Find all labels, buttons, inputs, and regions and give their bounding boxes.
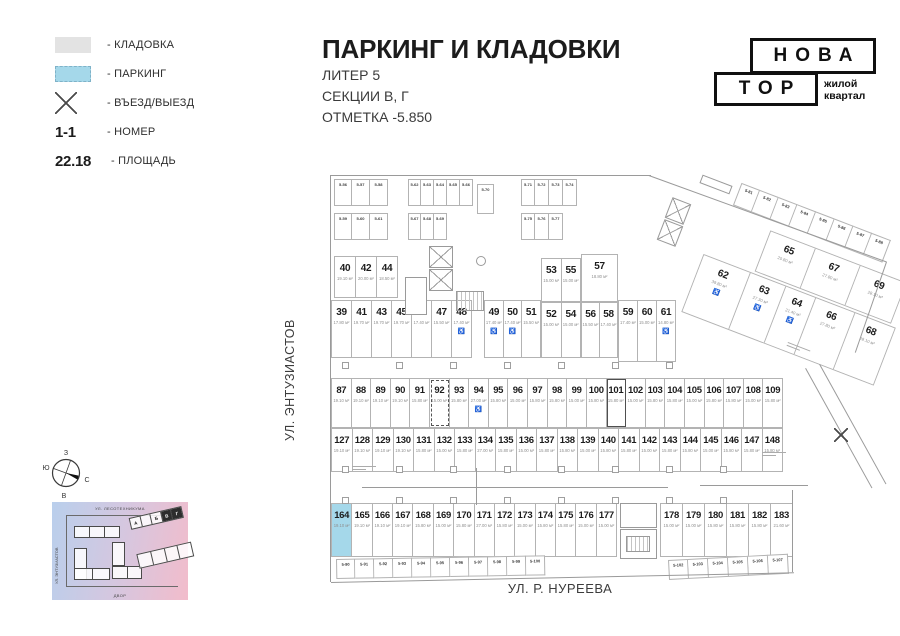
stall-number: 100 bbox=[589, 386, 604, 396]
stall-number: 169 bbox=[436, 511, 451, 521]
parking-stall-139[interactable]: 13915.00 м² bbox=[578, 429, 599, 471]
parking-stall-100[interactable]: 10015.80 м² bbox=[587, 379, 607, 427]
storage-cell-5-96[interactable]: 5-96 bbox=[450, 557, 469, 577]
stall-area: 15.00 м² bbox=[639, 320, 655, 325]
stall-area: 15.80 м² bbox=[415, 523, 431, 528]
parking-stall-134[interactable]: 13427.00 м² bbox=[476, 429, 497, 471]
stall-group-gB3: 5215.00 м²5415.00 м² bbox=[541, 302, 581, 358]
parking-stall-164[interactable]: 16419.10 м² bbox=[332, 504, 352, 556]
stall-number: 131 bbox=[416, 436, 431, 446]
storage-cell-5-60[interactable]: 5-60 bbox=[352, 213, 370, 240]
stall-area: 27.00 м² bbox=[477, 448, 493, 453]
parking-stall-42[interactable]: 4220.00 м² bbox=[356, 257, 377, 297]
stall-number: 63 bbox=[757, 284, 770, 297]
stall-group-gB2: 4917.40 м²♿5017.40 м²♿5115.50 м² bbox=[484, 300, 541, 358]
column-marker bbox=[396, 497, 403, 504]
stall-area: 15.80 м² bbox=[539, 448, 555, 453]
parking-stall-143[interactable]: 14315.80 м² bbox=[660, 429, 681, 471]
stall-number: 132 bbox=[437, 436, 452, 446]
parking-stall-49[interactable]: 4917.40 м²♿ bbox=[485, 301, 504, 357]
parking-stall-109[interactable]: 10915.80 м² bbox=[763, 379, 782, 427]
minimap-building bbox=[112, 542, 125, 566]
parking-stall-166[interactable]: 16619.10 м² bbox=[373, 504, 393, 556]
stall-area: 19.70 м² bbox=[394, 320, 410, 325]
stall-number: 55 bbox=[565, 266, 576, 276]
svg-text:В: В bbox=[62, 493, 67, 500]
stall-number: 87 bbox=[336, 386, 346, 396]
stall-area: 15.00 м² bbox=[436, 448, 452, 453]
parking-stall-170[interactable]: 17015.80 м² bbox=[454, 504, 474, 556]
stall-group-gA: 4019.10 м²4220.00 м²4418.50 м² bbox=[334, 256, 398, 298]
stall-area: 15.80 м² bbox=[730, 523, 746, 528]
column-marker bbox=[342, 362, 349, 369]
annotation-note bbox=[352, 466, 376, 472]
stall-number: 139 bbox=[580, 436, 595, 446]
column-marker bbox=[666, 497, 673, 504]
stall-area: 15.00 м² bbox=[580, 448, 596, 453]
storage-cell-5-71[interactable]: 5-71 bbox=[521, 179, 535, 206]
parking-stall-131[interactable]: 13115.80 м² bbox=[414, 429, 435, 471]
minimap-building bbox=[74, 568, 110, 580]
parking-stall-169[interactable]: 16915.00 м² bbox=[434, 504, 454, 556]
parking-stall-61[interactable]: 6114.80 м²♿ bbox=[657, 301, 675, 361]
parking-stall-142[interactable]: 14215.00 м² bbox=[640, 429, 661, 471]
stall-area: 15.80 м² bbox=[726, 398, 742, 403]
stall-number: 49 bbox=[489, 308, 500, 318]
parking-stall-130[interactable]: 13019.10 м² bbox=[394, 429, 415, 471]
storage-cell-5-75[interactable]: 5-75 bbox=[521, 213, 535, 240]
stall-area: 19.70 м² bbox=[354, 320, 370, 325]
stall-number: 172 bbox=[497, 511, 512, 521]
parking-stall-144[interactable]: 14415.80 м² bbox=[681, 429, 702, 471]
stall-group-gC: 8719.10 м²8819.10 м²8919.10 м²9019.10 м²… bbox=[331, 378, 783, 428]
stall-number: 177 bbox=[599, 511, 614, 521]
stall-area: 15.00 м² bbox=[686, 523, 702, 528]
stall-number: 145 bbox=[703, 436, 718, 446]
parking-stall-165[interactable]: 16519.10 м² bbox=[352, 504, 372, 556]
parking-stall-103[interactable]: 10315.80 м² bbox=[646, 379, 666, 427]
parking-stall-135[interactable]: 13515.80 м² bbox=[496, 429, 517, 471]
wall-line bbox=[819, 364, 886, 484]
stall-area: 19.10 м² bbox=[395, 448, 411, 453]
parking-stall-52[interactable]: 5215.00 м² bbox=[542, 303, 562, 357]
storage-cell-5-103[interactable]: 5-103 bbox=[688, 558, 709, 579]
stall-area: 15.80 м² bbox=[744, 448, 760, 453]
parking-stall-105[interactable]: 10515.00 м² bbox=[685, 379, 705, 427]
stall-area: 19.10 м² bbox=[334, 523, 350, 528]
parking-stall-127[interactable]: 12719.10 м² bbox=[332, 429, 353, 471]
column-marker bbox=[720, 497, 727, 504]
stall-area: 15.80 м² bbox=[412, 398, 428, 403]
parking-stall-97[interactable]: 9715.80 м² bbox=[528, 379, 548, 427]
stall-area: 27.00 м² bbox=[471, 398, 487, 403]
storage-cell-5-70[interactable]: 5-70 bbox=[477, 184, 494, 214]
stall-area: 15.80 м² bbox=[600, 448, 616, 453]
storage-cell-5-99[interactable]: 5-99 bbox=[507, 556, 526, 576]
stall-group-gE2: 17815.00 м²17915.00 м²18015.80 м²18115.8… bbox=[660, 503, 793, 557]
storage-cell-5-67[interactable]: 5-67 bbox=[408, 213, 421, 240]
parking-stall-101[interactable]: 10115.80 м² bbox=[607, 379, 627, 427]
stall-area: 15.80 м² bbox=[537, 523, 553, 528]
parking-stall-140[interactable]: 14015.80 м² bbox=[599, 429, 620, 471]
parking-stall-174[interactable]: 17415.80 м² bbox=[536, 504, 556, 556]
stall-number: 144 bbox=[683, 436, 698, 446]
column-marker bbox=[504, 362, 511, 369]
parking-stall-60[interactable]: 6015.00 м² bbox=[638, 301, 657, 361]
storage-cell-5-98[interactable]: 5-98 bbox=[488, 556, 507, 576]
parking-stall-44[interactable]: 4418.50 м² bbox=[377, 257, 397, 297]
column-marker bbox=[504, 497, 511, 504]
parking-stall-99[interactable]: 9915.00 м² bbox=[567, 379, 587, 427]
parking-stall-51[interactable]: 5115.50 м² bbox=[522, 301, 540, 357]
stall-number: 143 bbox=[662, 436, 677, 446]
parking-stall-179[interactable]: 17915.00 м² bbox=[683, 504, 705, 556]
stall-number: 135 bbox=[498, 436, 513, 446]
parking-stall-171[interactable]: 17127.00 м² bbox=[475, 504, 495, 556]
minimap-street-left: УЛ. ЭНТУЗИАСТОВ bbox=[54, 522, 59, 584]
parking-stall-173[interactable]: 17315.00 м² bbox=[515, 504, 535, 556]
parking-stall-176[interactable]: 17615.00 м² bbox=[576, 504, 596, 556]
svg-text:С: С bbox=[84, 477, 89, 484]
wheelchair-icon: ♿ bbox=[752, 305, 761, 313]
parking-stall-168[interactable]: 16815.80 м² bbox=[413, 504, 433, 556]
stall-area: 19.10 м² bbox=[333, 398, 349, 403]
parking-stall-50[interactable]: 5017.40 м²♿ bbox=[504, 301, 523, 357]
stall-area: 14.80 м² bbox=[658, 320, 674, 325]
storage-cell-5-68[interactable]: 5-68 bbox=[421, 213, 434, 240]
parking-stall-104[interactable]: 10415.80 м² bbox=[665, 379, 685, 427]
stall-area: 15.80 м² bbox=[451, 398, 467, 403]
stall-area: 17.40 м² bbox=[486, 320, 502, 325]
stall-area: 15.00 м² bbox=[745, 398, 761, 403]
parking-stall-128[interactable]: 12819.10 м² bbox=[353, 429, 374, 471]
parking-stall-177[interactable]: 17715.00 м² bbox=[597, 504, 616, 556]
parking-stall-172[interactable]: 17215.80 м² bbox=[495, 504, 515, 556]
stall-number: 133 bbox=[457, 436, 472, 446]
stall-number: 96 bbox=[513, 386, 523, 396]
stall-number: 43 bbox=[376, 308, 387, 318]
stall-group-gB: 3917.80 м²4119.70 м²4319.70 м²4519.70 м²… bbox=[331, 300, 472, 358]
parking-stall-59[interactable]: 5917.40 м² bbox=[619, 301, 638, 361]
stall-number: 167 bbox=[395, 511, 410, 521]
column-marker bbox=[450, 466, 457, 473]
stall-number: 130 bbox=[396, 436, 411, 446]
parking-stall-92[interactable]: 9215.00 м² bbox=[430, 379, 450, 427]
stall-area: 15.80 м² bbox=[456, 523, 472, 528]
stall-area: 15.80 м² bbox=[457, 448, 473, 453]
stall-number: 62 bbox=[716, 269, 729, 282]
stall-area: 15.00 м² bbox=[436, 523, 452, 528]
parking-stall-145[interactable]: 14515.00 м² bbox=[701, 429, 722, 471]
stall-area: 15.80 м² bbox=[682, 448, 698, 453]
parking-stall-175[interactable]: 17515.80 м² bbox=[556, 504, 576, 556]
stall-number: 174 bbox=[538, 511, 553, 521]
stall-area: 15.00 м² bbox=[664, 523, 680, 528]
parking-stall-53[interactable]: 5315.00 м² bbox=[542, 259, 562, 301]
stall-number: 94 bbox=[474, 386, 484, 396]
storage-cell-5-102[interactable]: 5-102 bbox=[668, 559, 689, 580]
column-marker bbox=[558, 466, 565, 473]
parking-stall-133[interactable]: 13315.80 м² bbox=[455, 429, 476, 471]
column-marker bbox=[720, 466, 727, 473]
stall-number: 146 bbox=[724, 436, 739, 446]
stall-area: 20.00 м² bbox=[358, 276, 374, 281]
parking-stall-95[interactable]: 9515.80 м² bbox=[489, 379, 509, 427]
storage-cell-5-94[interactable]: 5-94 bbox=[412, 557, 431, 577]
parking-stall-56[interactable]: 5615.50 м² bbox=[582, 303, 600, 357]
stall-number: 128 bbox=[355, 436, 370, 446]
stall-number: 129 bbox=[375, 436, 390, 446]
street-label-left: УЛ. ЭНТУЗИАСТОВ bbox=[283, 316, 297, 444]
wheelchair-icon: ♿ bbox=[509, 329, 516, 335]
stall-area: 15.50 м² bbox=[583, 322, 599, 327]
parking-stall-94[interactable]: 9427.00 м²♿ bbox=[469, 379, 489, 427]
parking-stall-57[interactable]: 5718.80 м² bbox=[582, 255, 617, 301]
stall-number: 58 bbox=[603, 310, 614, 320]
storage-cell-5-76[interactable]: 5-76 bbox=[535, 213, 549, 240]
storage-cell-5-62[interactable]: 5-62 bbox=[408, 179, 421, 206]
stall-group-gA2: 5315.00 м²5515.00 м² bbox=[541, 258, 581, 302]
stall-number: 99 bbox=[572, 386, 582, 396]
column-marker bbox=[612, 466, 619, 473]
parking-stall-180[interactable]: 18015.80 м² bbox=[705, 504, 727, 556]
storage-cell-5-92[interactable]: 5-92 bbox=[374, 558, 393, 578]
storage-cell-5-58[interactable]: 5-58 bbox=[370, 179, 388, 206]
parking-stall-183[interactable]: 18321.60 м² bbox=[771, 504, 792, 556]
storage-cell-5-66[interactable]: 5-66 bbox=[460, 179, 473, 206]
stall-area: 15.00 м² bbox=[563, 278, 579, 283]
minimap-building bbox=[112, 566, 142, 579]
stall-area: 15.80 м² bbox=[621, 448, 637, 453]
stall-number: 108 bbox=[746, 386, 761, 396]
storage-cell-5-72[interactable]: 5-72 bbox=[535, 179, 549, 206]
stall-area: 15.00 м² bbox=[641, 448, 657, 453]
storage-cluster-2: 5-70 bbox=[477, 184, 494, 214]
parking-stall-106[interactable]: 10615.80 м² bbox=[705, 379, 725, 427]
stall-area: 15.80 м² bbox=[588, 398, 604, 403]
stall-number: 179 bbox=[686, 511, 701, 521]
stall-number: 181 bbox=[730, 511, 745, 521]
wheelchair-icon: ♿ bbox=[785, 317, 794, 325]
stall-area: 15.80 м² bbox=[608, 398, 624, 403]
parking-stall-108[interactable]: 10815.00 м² bbox=[744, 379, 764, 427]
storage-cell-5-97[interactable]: 5-97 bbox=[469, 556, 488, 576]
storage-cell-5-57[interactable]: 5-57 bbox=[352, 179, 370, 206]
stall-number: 182 bbox=[752, 511, 767, 521]
stall-number: 59 bbox=[623, 308, 634, 318]
column-marker bbox=[396, 466, 403, 473]
stall-number: 64 bbox=[790, 297, 803, 310]
stall-area: 19.10 м² bbox=[353, 398, 369, 403]
stall-number: 148 bbox=[765, 436, 780, 446]
stall-number: 137 bbox=[539, 436, 554, 446]
stall-number: 50 bbox=[507, 308, 518, 318]
stall-number: 106 bbox=[706, 386, 721, 396]
parking-stall-138[interactable]: 13815.80 м² bbox=[558, 429, 579, 471]
parking-stall-147[interactable]: 14715.80 м² bbox=[742, 429, 763, 471]
parking-stall-93[interactable]: 9315.80 м² bbox=[450, 379, 470, 427]
parking-stall-87[interactable]: 8719.10 м² bbox=[332, 379, 352, 427]
parking-stall-181[interactable]: 18115.80 м² bbox=[727, 504, 749, 556]
stall-area: 18.50 м² bbox=[379, 276, 395, 281]
stall-group-gB4: 5615.50 м²5817.40 м² bbox=[581, 302, 618, 358]
stall-area: 21.60 м² bbox=[774, 523, 790, 528]
parking-stall-148[interactable]: 14815.80 м² bbox=[763, 429, 783, 471]
storage-cell-5-56[interactable]: 5-56 bbox=[334, 179, 352, 206]
stall-area: 15.00 м² bbox=[569, 398, 585, 403]
stall-area: 15.00 м² bbox=[598, 523, 614, 528]
wall-line bbox=[330, 175, 331, 582]
column-marker bbox=[558, 497, 565, 504]
storage-cell-5-63[interactable]: 5-63 bbox=[421, 179, 434, 206]
parking-stall-102[interactable]: 10215.00 м² bbox=[626, 379, 646, 427]
stall-area: 15.80 м² bbox=[708, 523, 724, 528]
stall-area: 15.00 м² bbox=[543, 322, 559, 327]
parking-stall-141[interactable]: 14115.80 м² bbox=[619, 429, 640, 471]
minimap-building bbox=[74, 526, 120, 538]
stall-number: 138 bbox=[560, 436, 575, 446]
column-marker bbox=[450, 497, 457, 504]
parking-stall-89[interactable]: 8919.10 м² bbox=[371, 379, 391, 427]
storage-cell-5-95[interactable]: 5-95 bbox=[431, 557, 450, 577]
parking-stall-90[interactable]: 9019.10 м² bbox=[391, 379, 411, 427]
storage-cell-5-90[interactable]: 5-90 bbox=[336, 559, 355, 579]
stall-area: 15.80 м² bbox=[752, 523, 768, 528]
parking-stall-58[interactable]: 5817.40 м² bbox=[600, 303, 617, 357]
parking-stall-91[interactable]: 9115.80 м² bbox=[410, 379, 430, 427]
compass-icon: З Ю С В bbox=[42, 446, 92, 502]
wheelchair-icon: ♿ bbox=[490, 329, 497, 335]
stall-area: 19.10 м² bbox=[373, 398, 389, 403]
stall-area: 15.00 м² bbox=[578, 523, 594, 528]
storage-cell-5-93[interactable]: 5-93 bbox=[393, 558, 412, 578]
stall-number: 39 bbox=[336, 308, 347, 318]
stall-number: 95 bbox=[493, 386, 503, 396]
stall-area: 15.80 м² bbox=[498, 448, 514, 453]
parking-stall-167[interactable]: 16719.10 м² bbox=[393, 504, 413, 556]
stall-area: 15.00 м² bbox=[431, 398, 447, 403]
stall-area: 15.80 м² bbox=[765, 398, 781, 403]
parking-stall-132[interactable]: 13215.00 м² bbox=[435, 429, 456, 471]
stall-number: 57 bbox=[594, 262, 605, 272]
storage-cell-5-77[interactable]: 5-77 bbox=[549, 213, 563, 240]
stall-area: 19.70 м² bbox=[374, 320, 390, 325]
storage-cell-5-91[interactable]: 5-91 bbox=[355, 558, 374, 578]
column-marker bbox=[666, 362, 673, 369]
stall-group-gB5: 5917.40 м²6015.00 м²6114.80 м²♿ bbox=[618, 300, 676, 362]
wheelchair-icon: ♿ bbox=[711, 289, 720, 297]
stall-area: 15.80 м² bbox=[549, 398, 565, 403]
parking-stall-137[interactable]: 13715.80 м² bbox=[537, 429, 558, 471]
storage-cell-5-64[interactable]: 5-64 bbox=[434, 179, 447, 206]
stall-area: 19.10 м² bbox=[395, 523, 411, 528]
stall-number: 101 bbox=[608, 386, 623, 396]
parking-stall-54[interactable]: 5415.00 м² bbox=[562, 303, 581, 357]
stall-number: 97 bbox=[532, 386, 542, 396]
parking-stall-43[interactable]: 4319.70 м² bbox=[372, 301, 392, 357]
storage-band-left: 5-905-915-925-935-945-955-965-975-985-99… bbox=[336, 555, 545, 579]
parking-stall-39[interactable]: 3917.80 м² bbox=[332, 301, 352, 357]
stairs-icon bbox=[626, 536, 650, 552]
parking-stall-96[interactable]: 9615.00 м² bbox=[508, 379, 528, 427]
parking-stall-88[interactable]: 8819.10 м² bbox=[352, 379, 372, 427]
storage-cluster-1: 5-625-635-645-655-665-675-685-69 bbox=[408, 179, 473, 247]
storage-band-right: 5-1025-1035-1045-1055-1065-107 bbox=[668, 554, 789, 580]
storage-cell-5-74[interactable]: 5-74 bbox=[563, 179, 577, 206]
parking-stall-146[interactable]: 14615.80 м² bbox=[722, 429, 743, 471]
wall-line bbox=[362, 487, 668, 488]
storage-cell-5-73[interactable]: 5-73 bbox=[549, 179, 563, 206]
stall-number: 53 bbox=[546, 266, 557, 276]
parking-stall-40[interactable]: 4019.10 м² bbox=[335, 257, 356, 297]
stall-area: 15.50 м² bbox=[523, 320, 539, 325]
site-minimap: УЛ. ЛЕСОТЕХНИКУМА УЛ. ЭНТУЗИАСТОВ ДВОР А… bbox=[52, 502, 188, 600]
stall-area: 19.10 м² bbox=[392, 398, 408, 403]
parking-stall-182[interactable]: 18215.80 м² bbox=[749, 504, 771, 556]
storage-cell-5-61[interactable]: 5-61 bbox=[370, 213, 388, 240]
stall-area: 19.10 м² bbox=[375, 448, 391, 453]
parking-stall-129[interactable]: 12919.10 м² bbox=[373, 429, 394, 471]
storage-cell-5-65[interactable]: 5-65 bbox=[447, 179, 460, 206]
column-marker bbox=[504, 466, 511, 473]
parking-stall-107[interactable]: 10715.80 м² bbox=[724, 379, 744, 427]
stall-number: 88 bbox=[356, 386, 366, 396]
stall-number: 136 bbox=[519, 436, 534, 446]
shaft-box bbox=[405, 277, 427, 315]
parking-stall-41[interactable]: 4119.70 м² bbox=[352, 301, 372, 357]
parking-stall-178[interactable]: 17815.00 м² bbox=[661, 504, 683, 556]
stall-area: 15.50 м² bbox=[434, 320, 450, 325]
stall-number: 93 bbox=[454, 386, 464, 396]
storage-cluster-0: 5-565-575-585-595-605-61 bbox=[334, 179, 388, 247]
label-plate bbox=[699, 175, 732, 195]
stall-number: 41 bbox=[356, 308, 367, 318]
stall-number: 47 bbox=[436, 308, 447, 318]
minimap-street-bottom: ДВОР bbox=[52, 593, 188, 598]
parking-stall-136[interactable]: 13615.00 м² bbox=[517, 429, 538, 471]
wheelchair-icon: ♿ bbox=[458, 329, 465, 335]
parking-stall-47[interactable]: 4715.50 м² bbox=[432, 301, 452, 357]
stall-area: 15.00 м² bbox=[563, 322, 579, 327]
stall-number: 40 bbox=[340, 264, 351, 274]
stall-area: 17.40 м² bbox=[601, 322, 617, 327]
stall-area: 19.10 м² bbox=[334, 448, 350, 453]
stall-number: 61 bbox=[661, 308, 672, 318]
stall-area: 19.10 м² bbox=[354, 448, 370, 453]
stall-number: 92 bbox=[434, 386, 444, 396]
stall-number: 67 bbox=[827, 262, 840, 275]
street-label-bottom: УЛ. Р. НУРЕЕВА bbox=[450, 581, 670, 596]
stall-group-gA3: 5718.80 м² bbox=[581, 254, 618, 302]
storage-cell-5-59[interactable]: 5-59 bbox=[334, 213, 352, 240]
stall-number: 147 bbox=[744, 436, 759, 446]
column-marker bbox=[396, 362, 403, 369]
stall-area: 15.80 м² bbox=[559, 448, 575, 453]
stall-number: 107 bbox=[726, 386, 741, 396]
stall-number: 103 bbox=[648, 386, 663, 396]
storage-cell-5-100[interactable]: 5-100 bbox=[526, 555, 545, 575]
stall-number: 141 bbox=[621, 436, 636, 446]
stall-area: 18.80 м² bbox=[592, 274, 608, 279]
parking-stall-98[interactable]: 9815.80 м² bbox=[548, 379, 568, 427]
stall-area: 15.00 м² bbox=[627, 398, 643, 403]
storage-cell-5-69[interactable]: 5-69 bbox=[434, 213, 447, 240]
column-marker bbox=[450, 362, 457, 369]
wheelchair-icon: ♿ bbox=[662, 329, 669, 335]
stall-number: 166 bbox=[375, 511, 390, 521]
parking-stall-55[interactable]: 5515.00 м² bbox=[562, 259, 581, 301]
stairs-icon bbox=[456, 291, 484, 311]
